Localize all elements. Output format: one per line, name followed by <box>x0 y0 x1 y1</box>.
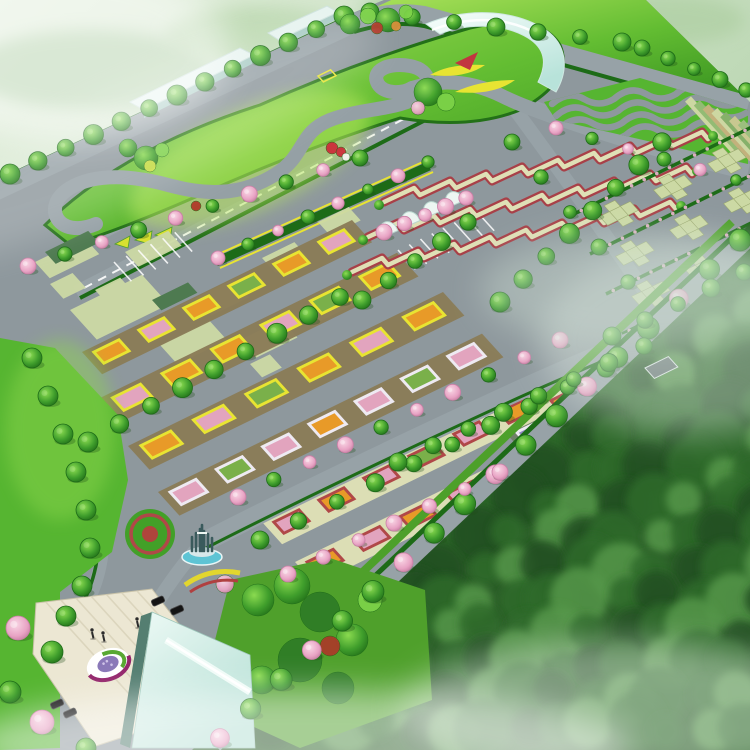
tree-highlight <box>524 401 529 406</box>
tree-canopy <box>363 184 374 195</box>
tree-highlight <box>637 43 642 48</box>
shrub <box>399 5 413 19</box>
tree-canopy <box>316 550 330 564</box>
tree-canopy <box>460 214 476 230</box>
tree-highlight <box>82 436 88 442</box>
tree-highlight <box>566 208 570 212</box>
tree-highlight <box>461 194 465 198</box>
tree-canopy <box>487 18 505 36</box>
tree-highlight <box>410 257 414 261</box>
tree-highlight <box>440 202 445 207</box>
tree-highlight <box>274 673 281 680</box>
tree-highlight <box>588 135 592 139</box>
tree-highlight <box>519 439 525 445</box>
person-head <box>90 628 93 631</box>
tree-canopy <box>461 421 476 436</box>
tree-canopy <box>712 72 728 88</box>
tree-canopy <box>332 197 344 209</box>
tree-highlight <box>356 295 361 300</box>
tree-highlight <box>690 65 694 69</box>
tree-canopy <box>211 251 225 265</box>
tree-canopy <box>303 456 316 469</box>
tree-highlight <box>319 166 323 170</box>
tree-highlight <box>520 354 524 358</box>
tree-canopy <box>0 681 21 703</box>
tree-highlight <box>76 580 82 586</box>
tree-highlight <box>271 327 277 333</box>
tree-canopy <box>530 24 546 40</box>
tree-highlight <box>146 401 151 406</box>
tree-canopy <box>78 432 98 452</box>
tree-canopy <box>389 453 407 471</box>
site-plan-rendering <box>0 0 750 750</box>
tree-highlight <box>60 610 66 616</box>
tree-highlight <box>366 585 373 592</box>
tree-highlight <box>428 441 433 446</box>
tree-highlight <box>498 407 503 412</box>
hedge-flower-dot <box>671 212 675 216</box>
tree-highlight <box>23 261 28 266</box>
shrub <box>342 153 350 161</box>
tree-canopy <box>76 500 96 520</box>
tree-canopy <box>545 405 567 427</box>
tree-canopy <box>504 134 520 150</box>
hedge-ball <box>374 200 384 210</box>
tree-canopy <box>445 437 460 452</box>
tree-canopy <box>6 616 30 640</box>
tree-highlight <box>340 440 345 445</box>
tree-canopy <box>280 566 296 582</box>
tree-highlight <box>408 459 413 464</box>
tree-canopy <box>454 493 476 515</box>
hedge-flower-dot <box>721 187 725 191</box>
tree-highlight <box>379 227 384 232</box>
tree-highlight <box>624 146 627 149</box>
tree-canopy <box>131 222 147 238</box>
tree-highlight <box>400 219 404 223</box>
hedge-flower-dot <box>630 184 634 188</box>
tree-highlight <box>732 177 735 180</box>
tree-highlight <box>397 557 403 563</box>
tree-highlight <box>233 492 238 497</box>
tree-canopy <box>583 201 601 219</box>
tree-highlight <box>213 254 217 258</box>
tree-highlight <box>336 615 342 621</box>
tree-highlight <box>293 516 298 521</box>
hedge-flower-dot <box>680 159 684 163</box>
tree-highlight <box>319 553 323 557</box>
tree-highlight <box>171 214 175 218</box>
tree-highlight <box>26 352 32 358</box>
hedge-flower-dot <box>646 224 650 228</box>
tree-canopy <box>613 33 631 51</box>
tree-canopy <box>110 415 128 433</box>
tree-highlight <box>45 645 52 652</box>
tree-canopy <box>391 169 405 183</box>
tree-canopy <box>419 209 432 222</box>
tree-highlight <box>3 685 10 692</box>
tree-highlight <box>376 423 380 427</box>
tree-canopy <box>657 152 671 166</box>
tree-highlight <box>338 10 344 16</box>
tree-highlight <box>332 497 336 501</box>
tree-canopy <box>329 494 344 509</box>
tree-highlight <box>274 227 277 230</box>
tree-highlight <box>659 155 663 159</box>
tree-canopy <box>366 474 384 492</box>
hedge-ball <box>342 270 352 280</box>
tree-canopy <box>56 606 76 626</box>
tree-canopy <box>516 435 536 455</box>
tree-highlight <box>587 205 593 211</box>
tree-highlight <box>335 292 340 297</box>
person-head <box>101 631 104 634</box>
tree-canopy <box>332 611 352 631</box>
tree-canopy <box>332 289 349 306</box>
tree-canopy <box>20 258 36 274</box>
tree-canopy <box>237 343 254 360</box>
tree-highlight <box>507 137 512 142</box>
tree-highlight <box>485 420 490 425</box>
tree-highlight <box>484 371 488 375</box>
tree-canopy <box>143 397 160 414</box>
tree-canopy <box>459 191 473 205</box>
tree-highlight <box>282 178 286 182</box>
shrub <box>320 636 340 656</box>
tree-highlight <box>244 241 248 245</box>
tree-canopy <box>241 186 257 202</box>
tree-highlight <box>421 211 425 215</box>
tree-highlight <box>616 37 621 42</box>
tree-canopy <box>206 200 219 213</box>
tree-canopy <box>564 206 577 219</box>
tree-canopy <box>270 668 292 690</box>
tree-highlight <box>436 236 441 241</box>
hedge-flower-dot <box>655 172 659 176</box>
tree-canopy <box>72 576 92 596</box>
tree-canopy <box>299 306 317 324</box>
tree-canopy <box>586 132 598 144</box>
tree-highlight <box>176 382 182 388</box>
tree-highlight <box>575 33 579 37</box>
tree-canopy <box>518 351 531 364</box>
tree-highlight <box>424 158 428 162</box>
hedge-flower-dot <box>696 199 700 203</box>
tree-canopy <box>433 233 451 251</box>
tree-highlight <box>355 153 360 158</box>
hedge-flower-dot <box>642 178 646 182</box>
hedge-flower-dot <box>658 218 662 222</box>
tree-canopy <box>173 378 193 398</box>
tree-highlight <box>549 409 556 416</box>
tree-highlight <box>495 467 500 472</box>
shrub <box>242 584 274 616</box>
tree-canopy <box>38 386 58 406</box>
tree-canopy <box>397 216 411 230</box>
tree-canopy <box>302 641 321 660</box>
tree-highlight <box>383 276 388 281</box>
tree-canopy <box>386 515 402 531</box>
tree-highlight <box>696 166 700 170</box>
tree-canopy <box>623 143 634 154</box>
hedge-flower-dot <box>718 141 722 145</box>
tree-canopy <box>634 40 650 56</box>
roundabout <box>125 509 175 559</box>
tree-canopy <box>425 437 441 453</box>
tree-highlight <box>425 502 429 506</box>
tree-highlight <box>57 428 63 434</box>
tree-highlight <box>70 466 76 472</box>
tree-highlight <box>447 440 451 444</box>
tree-highlight <box>733 233 740 240</box>
tree-highlight <box>240 346 245 351</box>
tree-canopy <box>731 175 742 186</box>
tree-highlight <box>305 458 309 462</box>
tree-canopy <box>53 424 73 444</box>
tree-highlight <box>389 518 394 523</box>
tree-highlight <box>355 536 359 540</box>
tree-highlight <box>632 159 638 165</box>
tree-highlight <box>413 406 417 410</box>
tree-highlight <box>463 424 467 428</box>
tree-highlight <box>663 54 667 58</box>
tree-canopy <box>317 164 330 177</box>
tree-canopy <box>251 531 269 549</box>
tree-highlight <box>80 504 86 510</box>
tree-highlight <box>303 213 307 217</box>
tree-canopy <box>492 464 508 480</box>
tree-canopy <box>607 179 624 196</box>
tree-canopy <box>408 254 423 269</box>
tree-canopy <box>629 155 649 175</box>
tree-highlight <box>656 136 662 142</box>
tree-canopy <box>353 291 371 309</box>
tree-highlight <box>427 527 433 533</box>
tree-canopy <box>739 83 750 97</box>
tree-highlight <box>269 475 273 479</box>
tree-canopy <box>58 247 72 261</box>
tree-highlight <box>303 310 309 316</box>
tree-highlight <box>715 75 720 80</box>
hedge-flower-dot <box>579 209 583 213</box>
hedge-ball <box>358 235 368 245</box>
tree-highlight <box>610 183 615 188</box>
tree-canopy <box>267 323 287 343</box>
tree-canopy <box>445 384 461 400</box>
tree-canopy <box>422 499 436 513</box>
tree-canopy <box>290 513 306 529</box>
tree-highlight <box>364 186 367 189</box>
tree-canopy <box>352 150 368 166</box>
tree-highlight <box>533 27 538 32</box>
person-head <box>135 617 138 620</box>
tree-canopy <box>653 133 671 151</box>
tree-canopy <box>362 581 384 603</box>
tree-highlight <box>563 227 569 233</box>
tree-canopy <box>279 175 293 189</box>
tree-canopy <box>376 224 392 240</box>
tree-canopy <box>267 472 281 486</box>
shrub <box>216 575 234 593</box>
tree-highlight <box>369 477 374 482</box>
tree-canopy <box>41 641 63 663</box>
tree-canopy <box>549 121 563 135</box>
tree-highlight <box>490 22 495 27</box>
tree-canopy <box>694 163 706 175</box>
tree-canopy <box>481 368 495 382</box>
tree-highlight <box>463 217 468 222</box>
tree-canopy <box>688 63 701 76</box>
tree-canopy <box>337 437 353 453</box>
tree-canopy <box>394 553 413 572</box>
hedge-flower-dot <box>709 193 713 197</box>
tree-highlight <box>458 497 465 504</box>
tree-highlight <box>254 535 259 540</box>
tree-highlight <box>98 238 102 242</box>
tree-canopy <box>95 236 108 249</box>
tree-highlight <box>60 250 64 254</box>
tree-highlight <box>392 457 397 462</box>
tree-highlight <box>533 391 538 396</box>
tree-canopy <box>573 30 588 45</box>
tree-highlight <box>334 199 338 203</box>
hedge-flower-dot <box>693 153 697 157</box>
hedge-flower-dot <box>731 135 735 139</box>
tree-canopy <box>22 348 42 368</box>
tree-canopy <box>80 538 100 558</box>
tree-canopy <box>424 523 444 543</box>
tree-canopy <box>273 225 284 236</box>
tree-highlight <box>447 388 452 393</box>
tree-canopy <box>301 210 315 224</box>
tree-highlight <box>283 569 288 574</box>
tree-highlight <box>84 542 90 548</box>
tree-highlight <box>10 621 17 628</box>
tree-canopy <box>230 489 246 505</box>
tree-canopy <box>374 420 388 434</box>
hedge-flower-dot <box>705 147 709 151</box>
tree-highlight <box>461 485 465 489</box>
tree-highlight <box>393 172 397 176</box>
tree-canopy <box>205 360 223 378</box>
forest-canopy <box>666 482 701 517</box>
tree-canopy <box>458 483 471 496</box>
scene-svg <box>0 0 750 750</box>
shrub <box>391 21 401 31</box>
tree-highlight <box>133 225 138 230</box>
tree-highlight <box>536 173 540 177</box>
shrub <box>191 201 201 211</box>
tree-canopy <box>530 388 546 404</box>
tree-highlight <box>449 18 453 22</box>
tree-canopy <box>380 272 396 288</box>
tree-highlight <box>551 124 555 128</box>
shrub <box>437 93 455 111</box>
roundabout-center-flowers <box>142 526 158 542</box>
tree-highlight <box>208 202 212 206</box>
shrub <box>411 101 425 115</box>
tree-canopy <box>410 403 423 416</box>
forest-canopy <box>490 514 524 548</box>
tree-canopy <box>447 15 462 30</box>
tree-highlight <box>114 418 120 424</box>
hedge-ball <box>708 131 718 141</box>
tree-canopy <box>494 403 512 421</box>
tree-highlight <box>208 364 214 370</box>
tree-canopy <box>534 170 548 184</box>
tree-canopy <box>438 199 454 215</box>
tree-canopy <box>242 238 254 250</box>
tree-canopy <box>661 51 675 65</box>
tree-highlight <box>306 644 312 650</box>
hedge-flower-dot <box>684 206 688 210</box>
tree-canopy <box>66 462 86 482</box>
hedge-flower-dot <box>605 196 609 200</box>
tree-canopy <box>352 534 365 547</box>
hedge-flower-dot <box>743 129 747 133</box>
tree-canopy <box>168 211 182 225</box>
tree-highlight <box>244 189 249 194</box>
tree-highlight <box>741 86 745 90</box>
tree-canopy <box>422 156 434 168</box>
tree-highlight <box>42 390 48 396</box>
